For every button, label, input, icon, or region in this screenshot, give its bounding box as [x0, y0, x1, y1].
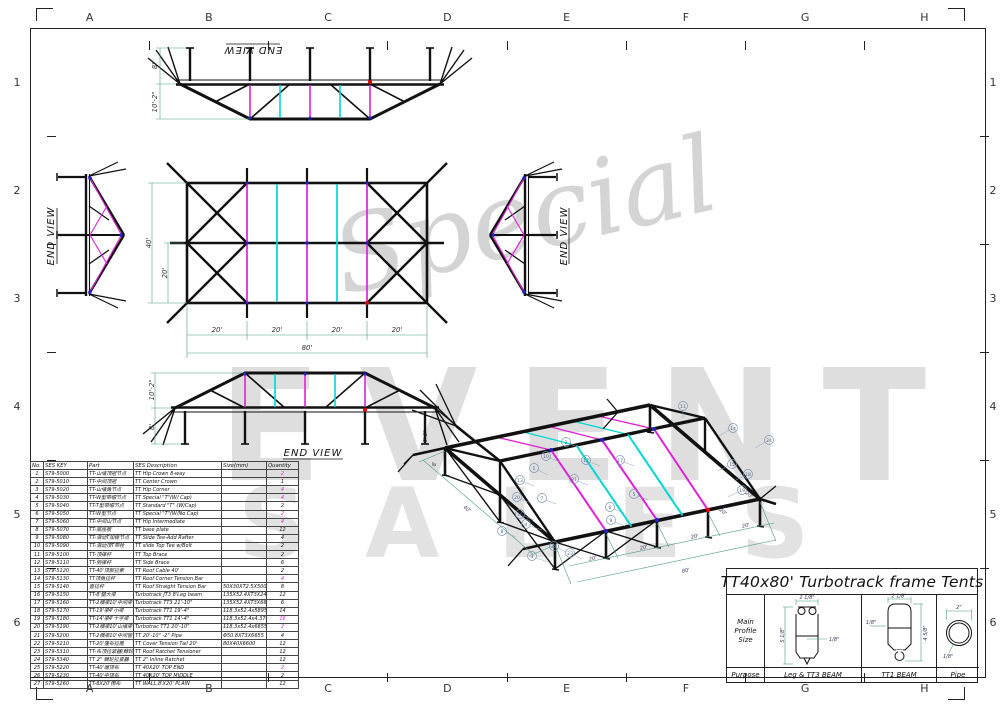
svg-text:18: 18	[745, 472, 751, 478]
part-ses-key: S79-5120	[44, 567, 88, 575]
svg-text:4 5/8": 4 5/8"	[923, 625, 929, 640]
part-size	[222, 680, 267, 688]
part-size	[222, 542, 267, 550]
part-size: 118.3x52.4x5895	[222, 607, 267, 615]
svg-text:10'-2": 10'-2"	[151, 91, 159, 112]
left-end-view: END VIEW	[36, 156, 136, 314]
part-quantity: 6	[267, 599, 299, 607]
svg-text:6: 6	[609, 505, 612, 511]
parts-table-row: 6 S79-5050 TT-W型节点 TT Special "T"(W/No C…	[31, 510, 299, 518]
svg-text:1/8": 1/8"	[943, 654, 953, 660]
part-name-cn: TT-T型带帽节点	[88, 502, 134, 510]
part-balloons: 1 2 3 4 5 6 7 8 9 10 11 12 13 14 15 16 1…	[498, 402, 774, 563]
part-no: 16	[31, 591, 44, 599]
part-size: 135X52.4XT3X2430	[222, 591, 267, 599]
part-description: TT 2" Inline Ratchet	[134, 656, 222, 664]
part-size	[222, 502, 267, 510]
part-description: TT 20'-10" -2" Pipe	[134, 631, 222, 639]
part-no: 18	[31, 607, 44, 615]
svg-text:10'-2": 10'-2"	[423, 430, 429, 445]
part-quantity: 4	[267, 575, 299, 583]
part-quantity: 2	[267, 510, 299, 518]
part-description: Turbotrack TT1 19'-4"	[134, 607, 222, 615]
grid-letter: B	[149, 8, 268, 26]
part-no: 25	[31, 664, 44, 672]
grid-letter: D	[388, 679, 507, 697]
svg-text:3: 3	[531, 554, 534, 560]
part-name-cn: TT-W型节点	[88, 510, 134, 518]
part-no: 2	[31, 478, 44, 486]
part-ses-key: S79-5200	[44, 631, 88, 639]
part-name-cn: TT-2横梁10'山墙梁	[88, 623, 134, 631]
part-size: 80X40X6600	[222, 640, 267, 648]
part-name-cn: TT-40'顶部拉索	[88, 567, 134, 575]
part-quantity: 2	[267, 551, 299, 559]
part-quantity: 4	[267, 494, 299, 502]
part-no: 9	[31, 534, 44, 542]
svg-text:24: 24	[766, 438, 772, 444]
svg-text:2 1/8": 2 1/8"	[891, 594, 906, 600]
part-quantity: 2	[267, 664, 299, 672]
part-ses-key: S79-5010	[44, 478, 88, 486]
part-quantity: 4	[267, 534, 299, 542]
part-name-cn: TT-中间顶冠	[88, 478, 134, 486]
part-description: TT 40X20' TOP END	[134, 664, 222, 672]
grid-letter: E	[507, 679, 626, 697]
svg-text:21: 21	[571, 477, 577, 483]
part-description: TT Roof Straight Tension Bar	[134, 583, 222, 591]
part-name-cn: TT-20'篷布拉尾	[88, 640, 134, 648]
grid-number: 6	[986, 568, 1000, 676]
drawing-sheet: { "colors": {"magenta":"#e020d8","cyan":…	[0, 0, 1000, 707]
part-size	[222, 478, 267, 486]
svg-text:20': 20'	[741, 522, 750, 529]
part-no: 11	[31, 551, 44, 559]
part-no: 4	[31, 494, 44, 502]
parts-table-row: 8 S79-5070 TT-底座板 TT base plate 12	[31, 526, 299, 534]
svg-text:1/8": 1/8"	[866, 620, 876, 626]
part-quantity: 2	[267, 542, 299, 550]
part-quantity: 1	[267, 478, 299, 486]
part-ses-key: S79-5160	[44, 599, 88, 607]
part-name-cn: TT-侧撑杆	[88, 559, 134, 567]
part-name-cn: TT-40'中顶布	[88, 672, 134, 680]
profile-drawing-leg-tt3: 2 1/8" 5 1/8" 1/8"	[765, 595, 862, 668]
parts-table-row: 23 S79-5310 TT-布顶拉紧器(棘轮式) TT Roof Ratche…	[31, 648, 299, 656]
part-ses-key: S79-5260	[44, 680, 88, 688]
part-quantity: 8	[267, 583, 299, 591]
svg-text:17: 17	[617, 458, 623, 464]
leg-tt3-profile-section: 2 1/8" 5 1/8" 1/8"	[765, 595, 862, 668]
parts-table-row: 11 S79-5100 TT-顶撑杆 TT Top Brace 2	[31, 551, 299, 559]
svg-text:END VIEW: END VIEW	[46, 207, 57, 266]
svg-text:20': 20'	[161, 268, 169, 279]
grid-number: 1	[6, 28, 28, 136]
parts-table-row: 4 S79-5030 TT-W型带帽节点 TT Special "T"(W/ C…	[31, 494, 299, 502]
parts-table-header-cell: No.	[31, 462, 44, 470]
profile-size-table: Main Profile Size 2 1/8" 5 1/8" 1/8"	[726, 595, 978, 683]
grid-number: 3	[986, 244, 1000, 352]
parts-table-row: 27 S79-5260 TT-8X20'围布 TT WALL,8'X20' PL…	[31, 680, 299, 688]
parts-table-header: No.SES KEYPartSES DescriptionSize(mm)Qua…	[31, 462, 299, 470]
part-description: TT WALL,8'X20' PLAIN	[134, 680, 222, 688]
part-name-cn: TT-底座板	[88, 526, 134, 534]
part-description: Turbotrack TT3 21'-10"	[134, 599, 222, 607]
profile-name-tt1: TT1 BEAM	[862, 668, 937, 682]
grid-number: 1	[986, 28, 1000, 136]
part-size	[222, 510, 267, 518]
part-name-cn: TT-8X20'围布	[88, 680, 134, 688]
part-no: 7	[31, 518, 44, 526]
part-quantity: 14	[267, 607, 299, 615]
part-name-cn: TT-8'腿大梁	[88, 591, 134, 599]
part-name-cn: TT 2" 棘轮拉紧器	[88, 656, 134, 664]
part-ses-key: S79-5090	[44, 542, 88, 550]
part-size	[222, 672, 267, 680]
part-description: TT base plate	[134, 526, 222, 534]
svg-text:14: 14	[730, 426, 736, 432]
svg-text:20': 20'	[272, 326, 283, 334]
grid-letter: F	[626, 8, 745, 26]
part-description: TT slide Top Tee w/Bolt	[134, 542, 222, 550]
part-ses-key: S79-5340	[44, 656, 88, 664]
svg-text:20': 20'	[639, 544, 648, 551]
part-ses-key: S79-5210	[44, 640, 88, 648]
part-description: TT Slide Tee-Add Rafter	[134, 534, 222, 542]
part-ses-key: S79-5060	[44, 518, 88, 526]
part-size: Φ50.8XT3X6655	[222, 631, 267, 639]
part-size	[222, 648, 267, 656]
part-name-cn: TT-W型带帽节点	[88, 494, 134, 502]
parts-table-row: 5 S79-5040 TT-T型带帽节点 TT Standard "T" (W/…	[31, 502, 299, 510]
part-no: 17	[31, 599, 44, 607]
purpose-label: Purpose	[727, 668, 765, 682]
grid-letter: A	[30, 8, 149, 26]
parts-table-header-cell: Quantity	[267, 462, 299, 470]
part-ses-key: S79-5000	[44, 470, 88, 478]
grid-number: 4	[986, 352, 1000, 460]
part-size	[222, 486, 267, 494]
pipe-profile-section: 2" 1/8"	[937, 595, 979, 668]
part-name-cn: TT-山墙角节点	[88, 486, 134, 494]
part-size: 118.3x52.4x6655	[222, 623, 267, 631]
svg-text:END VIEW: END VIEW	[224, 44, 283, 55]
parts-table-row: 20 S79-5190 TT-2横梁10'山墙梁 Turbotrac TT1 2…	[31, 623, 299, 631]
parts-table-row: 25 S79-5220 TT-40'端顶布 TT 40X20' TOP END …	[31, 664, 299, 672]
grid-number: 6	[6, 568, 28, 676]
part-name-cn: 直拉杆	[88, 583, 134, 591]
part-description: TT Roof Cable 40'	[134, 567, 222, 575]
part-name-cn: TT-2横梁10'中间梁	[88, 599, 134, 607]
part-description: TT Special "T"(W/No Cap)	[134, 510, 222, 518]
part-name-cn: TT-中间山节点	[88, 518, 134, 526]
parts-table-row: 9 S79-5080 TT-滑动T加椽节点 TT Slide Tee-Add R…	[31, 534, 299, 542]
parts-table-row: 19 S79-5180 TT-14'梁4'十字梁 Turbotrack TT1 …	[31, 615, 299, 623]
part-description: TT Special "T"(W/ Cap)	[134, 494, 222, 502]
part-quantity: 2	[267, 623, 299, 631]
part-size	[222, 534, 267, 542]
part-quantity: 2	[267, 502, 299, 510]
part-size	[222, 551, 267, 559]
part-no: 12	[31, 559, 44, 567]
part-size: 50X30XT2.5X500	[222, 583, 267, 591]
part-ses-key: S79-5040	[44, 502, 88, 510]
tt1-profile-section: 2 1/8" 4 5/8" 1/8"	[862, 595, 937, 668]
part-size	[222, 494, 267, 502]
svg-text:16: 16	[517, 512, 523, 518]
svg-text:15: 15	[729, 462, 735, 468]
part-no: 23	[31, 648, 44, 656]
svg-text:10'-2": 10'-2"	[148, 379, 156, 400]
part-ses-key: S79-5050	[44, 510, 88, 518]
parts-table-header-cell: Size(mm)	[222, 462, 267, 470]
part-quantity: 12	[267, 591, 299, 599]
part-description: TT Hip Crown 8-way	[134, 470, 222, 478]
part-no: 3	[31, 486, 44, 494]
parts-table-row: 13 S79-5120 TT-40'顶部拉索 TT Roof Cable 40'…	[31, 567, 299, 575]
svg-text:20': 20'	[392, 326, 403, 334]
part-name-cn: TT-40'端顶布	[88, 664, 134, 672]
grid-numbers-right: 123456	[986, 28, 1000, 676]
parts-table-row: 17 S79-5160 TT-2横梁10'中间梁 Turbotrack TT3 …	[31, 599, 299, 607]
svg-text:20': 20'	[718, 507, 728, 517]
right-end-view: END VIEW	[478, 156, 578, 314]
svg-text:20': 20'	[690, 533, 699, 540]
svg-text:20': 20'	[332, 326, 343, 334]
parts-table-row: 24 S79-5340 TT 2" 棘轮拉紧器 TT 2" Inline Rat…	[31, 656, 299, 664]
parts-table-row: 1 S79-5000 TT-山墙顶冠节点 TT Hip Crown 8-way …	[31, 470, 299, 478]
parts-table-header-cell: SES Description	[134, 462, 222, 470]
part-ses-key: S79-5130	[44, 575, 88, 583]
part-no: 1	[31, 470, 44, 478]
part-size: 135X52.4XT3X6655	[222, 599, 267, 607]
part-name-cn: TT-2横梁10'中间管	[88, 631, 134, 639]
part-quantity: 12	[267, 526, 299, 534]
svg-text:7: 7	[541, 496, 544, 502]
grid-number: 5	[986, 460, 1000, 568]
part-no: 10	[31, 542, 44, 550]
part-no: 24	[31, 656, 44, 664]
part-ses-key: S79-5190	[44, 623, 88, 631]
part-description: Turbotrack JT3 8'Leg beam	[134, 591, 222, 599]
part-name-cn: TT-布顶拉紧器(棘轮式)	[88, 648, 134, 656]
part-quantity: 2	[267, 470, 299, 478]
svg-text:5: 5	[633, 492, 636, 498]
part-quantity: 12	[267, 680, 299, 688]
drawing-title: TT40x80' Turbotrack frame Tents	[726, 568, 978, 595]
part-size	[222, 470, 267, 478]
profile-name-leg-tt3: Leg & TT3 BEAM	[765, 668, 862, 682]
top-flipped-elevation-view: END VIEW 8' 10'-2"	[140, 34, 480, 146]
parts-table-row: 15 S79-5140 直拉杆 TT Roof Straight Tension…	[31, 583, 299, 591]
parts-table-row: 21 S79-5200 TT-2横梁10'中间管 TT 20'-10" -2" …	[31, 631, 299, 639]
part-description: TT Top Brace	[134, 551, 222, 559]
svg-text:23: 23	[567, 551, 573, 557]
part-description: TT Cover Tension Tail 20'	[134, 640, 222, 648]
part-quantity: 6	[267, 559, 299, 567]
parts-table-row: 12 S79-5110 TT-侧撑杆 TT Side Brace 6	[31, 559, 299, 567]
parts-table-row: 18 S79-5170 TT-19'梁4'小梁 Turbotrack TT1 1…	[31, 607, 299, 615]
part-name-cn: TT-顶撑杆	[88, 551, 134, 559]
part-ses-key: S79-5020	[44, 486, 88, 494]
parts-table-header-cell: SES KEY	[44, 462, 88, 470]
part-name-cn: TT-山墙顶冠节点	[88, 470, 134, 478]
title-block: TT40x80' Turbotrack frame Tents Main Pro…	[726, 568, 978, 683]
part-ses-key: S79-5140	[44, 583, 88, 591]
part-ses-key: S79-5180	[44, 615, 88, 623]
part-no: 13	[31, 567, 44, 575]
svg-text:19: 19	[739, 488, 745, 494]
grid-letter: E	[507, 8, 626, 26]
part-no: 5	[31, 502, 44, 510]
parts-table: No.SES KEYPartSES DescriptionSize(mm)Qua…	[30, 461, 299, 689]
parts-table-row: 3 S79-5020 TT-山墙角节点 TT Hip Corner 4	[31, 486, 299, 494]
part-ses-key: S79-5100	[44, 551, 88, 559]
svg-text:8': 8'	[432, 462, 438, 467]
profile-drawing-pipe: 2" 1/8"	[937, 595, 979, 668]
svg-text:5 1/8": 5 1/8"	[780, 627, 786, 642]
parts-table-row: 2 S79-5010 TT-中间顶冠 TT Center Crown 1	[31, 478, 299, 486]
part-ses-key: S79-5170	[44, 607, 88, 615]
svg-text:40': 40'	[145, 238, 153, 249]
svg-text:40': 40'	[462, 504, 472, 514]
part-description: TT Hip Intermediate	[134, 518, 222, 526]
svg-text:12: 12	[583, 458, 589, 464]
part-quantity: 12	[267, 640, 299, 648]
part-size	[222, 656, 267, 664]
part-quantity: 16	[267, 615, 299, 623]
profile-drawing-tt1: 2 1/8" 4 5/8" 1/8"	[862, 595, 937, 668]
part-quantity: 4	[267, 518, 299, 526]
svg-text:22: 22	[551, 544, 557, 550]
profile-name-pipe: Pipe	[937, 668, 979, 682]
part-description: Turbotrack TT1 14'-4"	[134, 615, 222, 623]
svg-text:4: 4	[525, 522, 528, 528]
grid-letter: G	[746, 8, 865, 26]
part-ses-key: S79-5150	[44, 591, 88, 599]
part-description: TT 40X20' TOP MIDDLE	[134, 672, 222, 680]
part-description: TT Hip Corner	[134, 486, 222, 494]
part-name-cn: TT-滑动顶T带栓	[88, 542, 134, 550]
part-size	[222, 664, 267, 672]
part-size	[222, 526, 267, 534]
svg-text:1: 1	[533, 466, 536, 472]
part-name-cn: TT-滑动T加椽节点	[88, 534, 134, 542]
part-quantity: 2	[267, 672, 299, 680]
svg-text:20: 20	[514, 495, 520, 501]
grid-number: 3	[6, 244, 28, 352]
grid-number: 5	[6, 460, 28, 568]
grid-number: 4	[6, 352, 28, 460]
parts-table-row: 16 S79-5150 TT-8'腿大梁 Turbotrack JT3 8'Le…	[31, 591, 299, 599]
main-profile-size-label: Main Profile Size	[727, 595, 765, 668]
part-quantity: 4	[267, 631, 299, 639]
svg-text:2: 2	[565, 440, 568, 446]
svg-text:20': 20'	[212, 326, 223, 334]
svg-text:END VIEW: END VIEW	[559, 207, 570, 266]
part-no: 19	[31, 615, 44, 623]
parts-table-row: 14 S79-5130 TT顶角拉杆 TT Roof Corner Tensio…	[31, 575, 299, 583]
part-no: 22	[31, 640, 44, 648]
svg-text:20': 20'	[588, 555, 597, 562]
part-name-cn: TT顶角拉杆	[88, 575, 134, 583]
svg-text:END VIEW: END VIEW	[284, 448, 343, 459]
part-quantity: 12	[267, 656, 299, 664]
svg-text:11: 11	[680, 404, 686, 410]
isometric-view: 40' 20' 20' 20' 20' 80' 8' 10'-2" 20' 20…	[396, 376, 776, 591]
part-size	[222, 575, 267, 583]
grid-letter: D	[388, 8, 507, 26]
svg-text:1/8": 1/8"	[829, 637, 839, 643]
part-ses-key: S79-5070	[44, 526, 88, 534]
part-size	[222, 518, 267, 526]
part-ses-key: S79-5230	[44, 672, 88, 680]
svg-text:8': 8'	[151, 63, 159, 69]
svg-text:8': 8'	[148, 424, 156, 430]
part-description: TT Center Crown	[134, 478, 222, 486]
part-no: 20	[31, 623, 44, 631]
part-description: TT Roof Ratchet Tensioner	[134, 648, 222, 656]
part-description: TT Side Brace	[134, 559, 222, 567]
part-description: Turbotrac TT1 20'-10"	[134, 623, 222, 631]
grid-letter: H	[865, 8, 984, 26]
part-quantity: 2	[267, 567, 299, 575]
part-quantity: 4	[267, 486, 299, 494]
parts-table-row: 7 S79-5060 TT-中间山节点 TT Hip Intermediate …	[31, 518, 299, 526]
svg-text:8: 8	[501, 529, 504, 535]
part-no: 15	[31, 583, 44, 591]
parts-table-row: 26 S79-5230 TT-40'中顶布 TT 40X20' TOP MIDD…	[31, 672, 299, 680]
part-name-cn: TT-19'梁4'小梁	[88, 607, 134, 615]
grid-letter: C	[269, 8, 388, 26]
svg-text:9: 9	[610, 518, 613, 524]
part-quantity: 12	[267, 648, 299, 656]
grid-number: 2	[6, 136, 28, 244]
part-size: 118.3x52.4x4,370	[222, 615, 267, 623]
part-ses-key: S79-5030	[44, 494, 88, 502]
part-ses-key: S79-5310	[44, 648, 88, 656]
part-no: 26	[31, 672, 44, 680]
grid-numbers-left: 123456	[6, 28, 28, 676]
svg-text:13: 13	[517, 478, 523, 484]
grid-number: 2	[986, 136, 1000, 244]
svg-text:80': 80'	[681, 567, 690, 574]
part-ses-key: S79-5220	[44, 664, 88, 672]
part-no: 8	[31, 526, 44, 534]
part-size	[222, 559, 267, 567]
grid-letters-top: ABCDEFGH	[30, 8, 984, 26]
parts-table-header-cell: Part	[88, 462, 134, 470]
part-ses-key: S79-5080	[44, 534, 88, 542]
parts-table-row: 22 S79-5210 TT-20'篷布拉尾 TT Cover Tension …	[31, 640, 299, 648]
part-ses-key: S79-5110	[44, 559, 88, 567]
svg-text:2": 2"	[956, 605, 961, 611]
part-description: TT Standard "T" (W/Cap)	[134, 502, 222, 510]
svg-text:2 1/8": 2 1/8"	[799, 595, 814, 601]
part-name-cn: TT-14'梁4'十字梁	[88, 615, 134, 623]
part-no: 14	[31, 575, 44, 583]
part-description: TT Roof Corner Tension Bar	[134, 575, 222, 583]
part-no: 6	[31, 510, 44, 518]
svg-text:10: 10	[543, 454, 549, 460]
part-size	[222, 567, 267, 575]
part-no: 21	[31, 631, 44, 639]
parts-table-row: 10 S79-5090 TT-滑动顶T带栓 TT slide Top Tee w…	[31, 542, 299, 550]
plan-view: 40' 20' 20' 20' 20' 20' 80'	[140, 148, 470, 363]
part-no: 27	[31, 680, 44, 688]
